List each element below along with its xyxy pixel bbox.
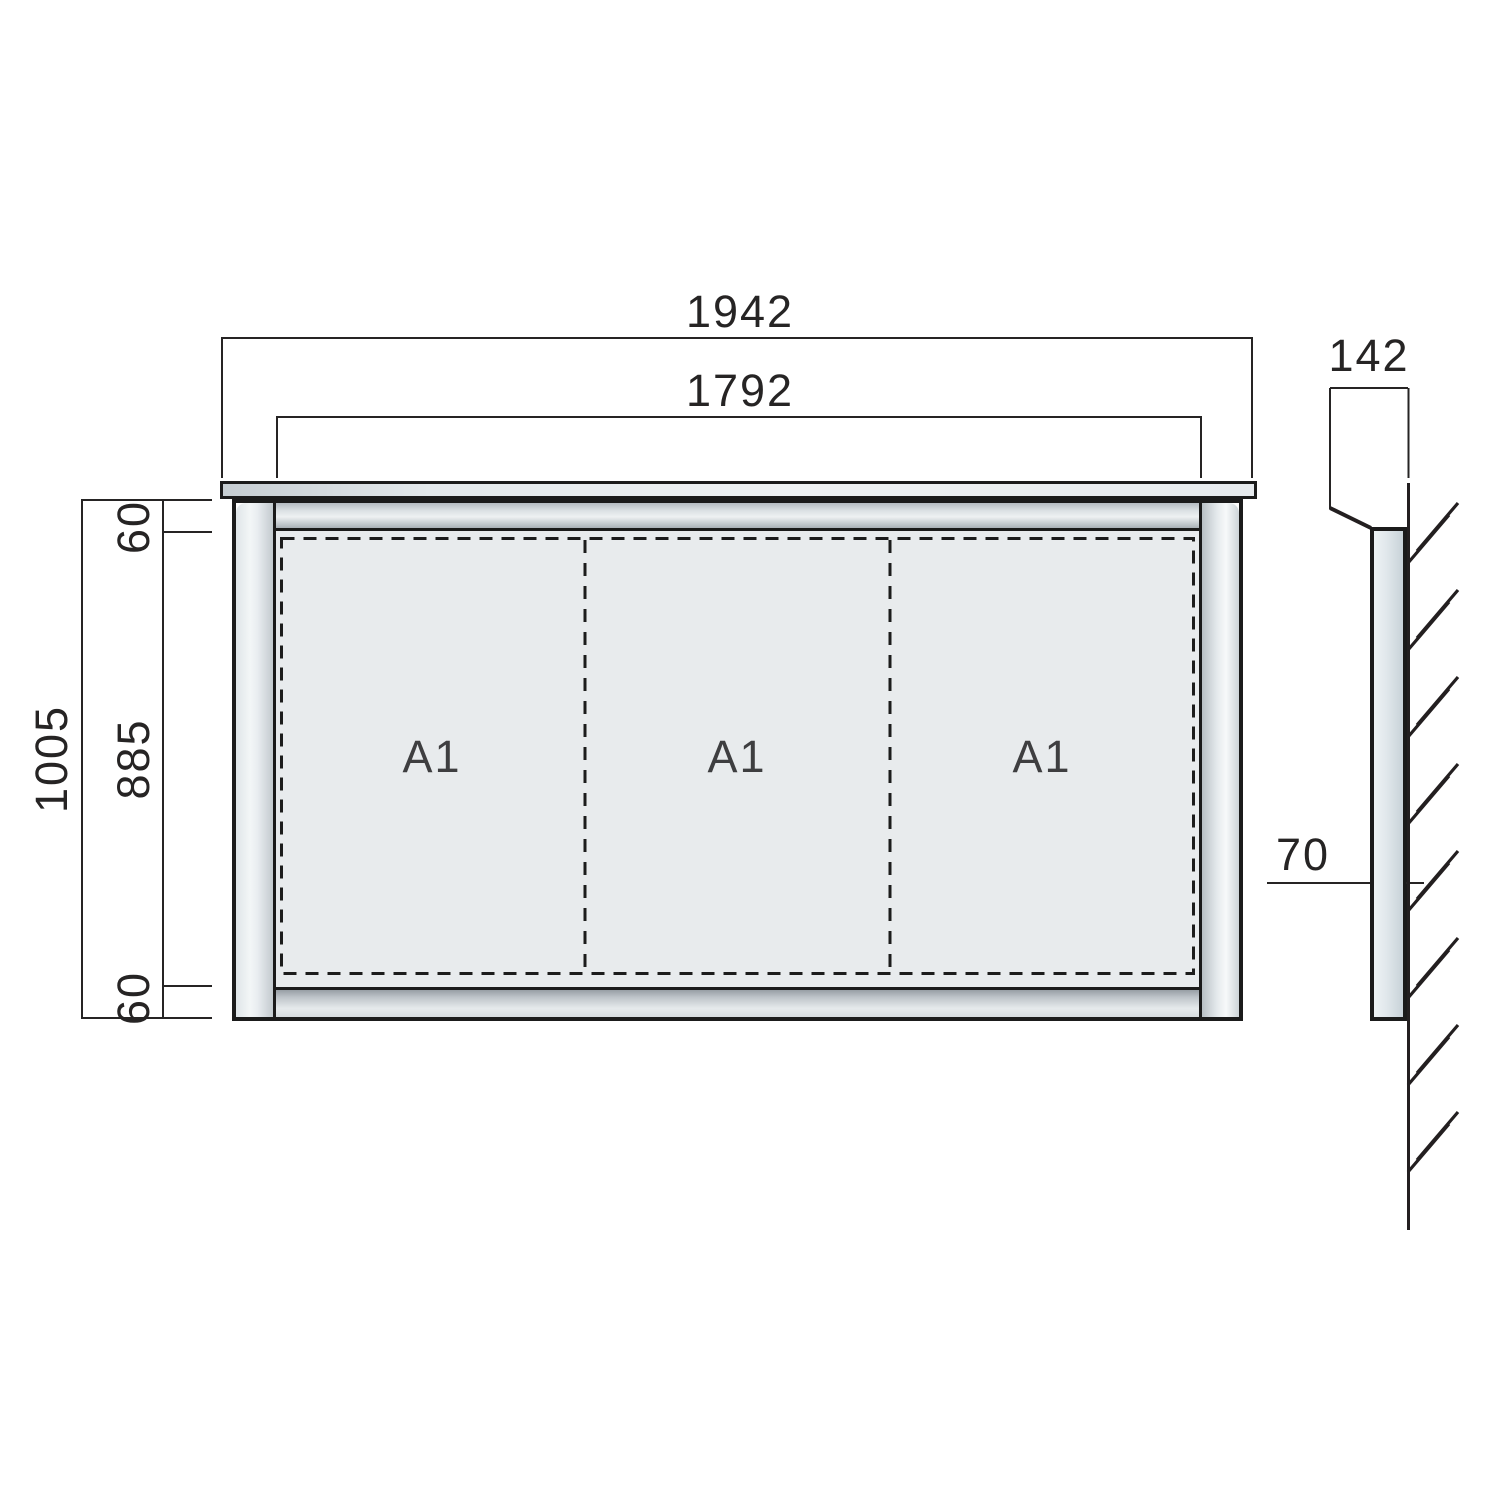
wall-hatch-mark [1408,764,1458,824]
dim-overall-width-ext-left [221,338,223,478]
dim-tick-opening-bottom [162,985,212,987]
wall-hatch-mark [1408,851,1458,911]
dim-depth-body-label: 70 [1276,829,1330,881]
dim-overall-width-line [221,337,1253,339]
wall-hatching [1408,503,1458,1172]
wall-hatch-mark [1408,1025,1458,1085]
left-frame-pillar [236,503,276,1017]
dim-top-margin-label: 60 [108,500,160,554]
side-profile-bar [1370,527,1407,1021]
top-frame-rail [276,503,1199,531]
dim-tick-opening-top [162,531,212,533]
dim-depth-total-ext-left [1329,388,1331,509]
technical-drawing-canvas: A1 A1 A1 1942 1792 1005 60 885 60 142 70 [0,0,1501,1500]
wall-hatch-mark [1408,938,1458,998]
dim-depth-body-line-right [1406,882,1424,884]
dim-overall-height-line [81,500,83,1019]
dim-opening-width-ext-right [1200,417,1202,478]
dim-opening-height-label: 885 [108,718,160,799]
wall-hatch-mark [1408,677,1458,737]
side-cap-slant-line [1330,508,1371,528]
wall-hatch-mark [1408,590,1458,650]
poster-label-a1-left: A1 [402,731,461,783]
dim-opening-width-line [276,416,1202,418]
poster-label-a1-right: A1 [1012,731,1071,783]
dim-overall-height-label: 1005 [26,705,78,813]
dim-segment-height-line [162,500,164,1019]
wall-hatch-mark [1408,503,1458,563]
dim-overall-width-ext-right [1251,338,1253,478]
dim-opening-width-label: 1792 [686,365,794,417]
top-cap-plate [220,481,1257,499]
bottom-frame-rail [276,987,1199,1017]
right-frame-pillar [1199,503,1239,1017]
dim-depth-body-line [1267,882,1370,884]
poster-label-a1-center: A1 [707,731,766,783]
dim-depth-total-line [1330,387,1408,389]
dim-depth-total-label: 142 [1328,330,1409,382]
wall-hatch-mark [1408,1112,1458,1172]
dim-overall-width-label: 1942 [686,286,794,338]
dim-opening-width-ext-left [276,417,278,478]
dim-bottom-margin-label: 60 [108,971,160,1025]
